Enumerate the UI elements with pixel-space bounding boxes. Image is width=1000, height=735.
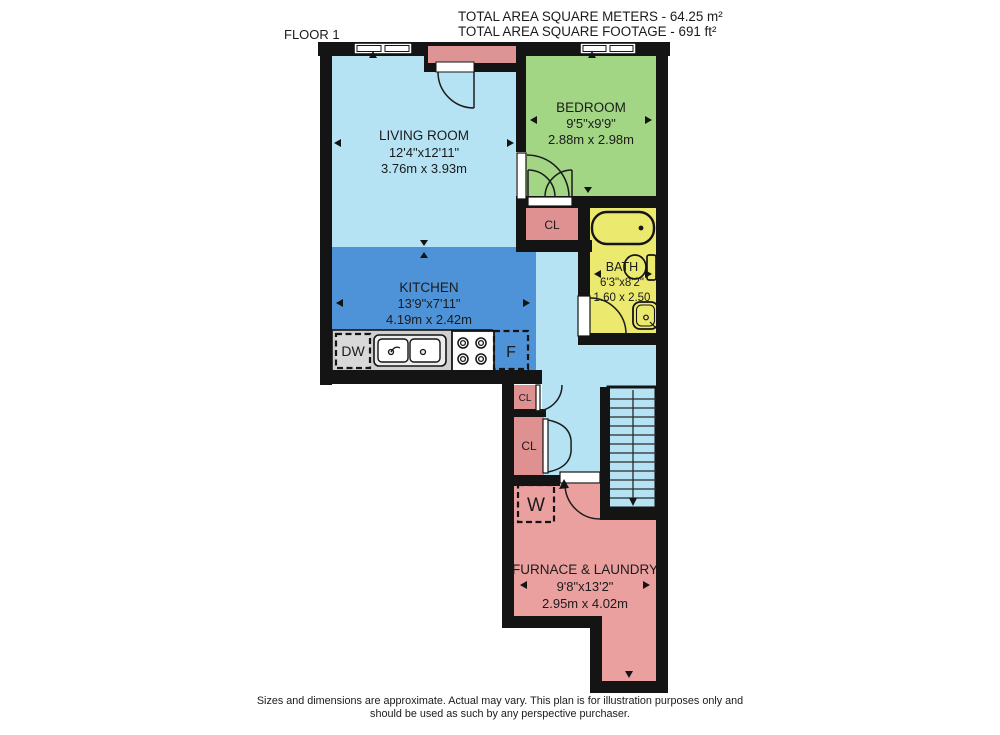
hall-closet-large-label: CL — [521, 439, 537, 453]
bedroom-window — [580, 43, 636, 54]
furnace-name: FURNACE & LAUNDRY — [512, 562, 658, 577]
total-area-block: TOTAL AREA SQUARE METERS - 64.25 m² TOTA… — [458, 9, 723, 39]
hallway-lower — [542, 371, 600, 486]
hall-closet-small-label: CL — [519, 393, 532, 404]
bedroom-name: BEDROOM — [556, 100, 626, 115]
floorplan-page: FLOOR 1 TOTAL AREA SQUARE METERS - 64.25… — [0, 0, 1000, 735]
bedroom-size-imperial: 9'5"x9'9" — [566, 116, 616, 131]
total-area-metric: TOTAL AREA SQUARE METERS - 64.25 m² — [458, 9, 723, 24]
floor-label: FLOOR 1 — [284, 27, 340, 42]
stove — [452, 331, 494, 371]
furnace-size-imperial: 9'8"x13'2" — [557, 579, 614, 594]
entry-landing-inset — [428, 46, 516, 63]
closet-door-opening — [528, 197, 572, 206]
stairs-area — [608, 387, 656, 508]
disclaimer: Sizes and dimensions are approximate. Ac… — [0, 695, 1000, 721]
dishwasher-label: DW — [341, 343, 365, 359]
kitchen-sink — [374, 335, 446, 366]
hall-closet-small-door-leaf — [536, 385, 540, 411]
bathtub-drain — [639, 226, 644, 231]
bedroom-closet-label: CL — [544, 218, 560, 232]
washer-label: W — [527, 495, 545, 516]
furnace-size-metric: 2.95m x 4.02m — [542, 596, 628, 611]
living-room-size-metric: 3.76m x 3.93m — [381, 161, 467, 176]
disclaimer-line2: should be used as such by any perspectiv… — [0, 708, 1000, 721]
bedroom-door-leaf — [517, 153, 526, 199]
living-room-name: LIVING ROOM — [379, 128, 469, 143]
fridge-label: F — [506, 344, 516, 361]
bath-door-leaf — [578, 296, 590, 336]
living-room-window — [354, 43, 412, 54]
furnace-door-threshold — [560, 472, 600, 483]
hallway-upper — [536, 252, 578, 371]
kitchen-name: KITCHEN — [399, 280, 458, 295]
entry-door-opening — [436, 62, 474, 72]
bedroom-size-metric: 2.88m x 2.98m — [548, 132, 634, 147]
kitchen-size-imperial: 13'9"x7'11" — [397, 296, 460, 311]
bath-name: BATH — [606, 260, 638, 274]
kitchen-size-metric: 4.19m x 2.42m — [386, 312, 472, 327]
disclaimer-line1: Sizes and dimensions are approximate. Ac… — [0, 695, 1000, 708]
bath-size-imperial: 6'3"x8'2" — [600, 277, 644, 289]
floorplan-drawing: LIVING ROOM 12'4"x12'11" 3.76m x 3.93m B… — [0, 0, 1000, 735]
total-area-imperial: TOTAL AREA SQUARE FOOTAGE - 691 ft² — [458, 24, 723, 39]
living-room-size-imperial: 12'4"x12'11" — [389, 145, 460, 160]
hall-closet-large-door-leaf — [543, 419, 548, 473]
bath-size-metric: 1.60 x 2.50 — [594, 292, 651, 304]
